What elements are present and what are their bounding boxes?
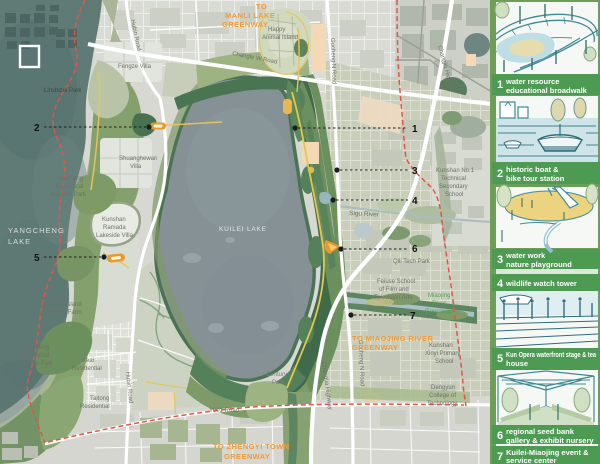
svg-text:Wetland Park: Wetland Park xyxy=(50,192,87,198)
svg-text:6: 6 xyxy=(412,244,418,255)
svg-text:educational broadwalk: educational broadwalk xyxy=(506,86,588,95)
svg-text:gallery & exhibit nursery: gallery & exhibit nursery xyxy=(506,436,594,445)
svg-text:wildlife watch tower: wildlife watch tower xyxy=(505,279,577,288)
svg-text:Ecological: Ecological xyxy=(22,353,49,359)
svg-text:Kunshan No.1: Kunshan No.1 xyxy=(436,168,475,174)
svg-text:Baicheng: Baicheng xyxy=(24,345,49,351)
svg-text:Y001 Road: Y001 Road xyxy=(209,408,239,414)
svg-text:water work: water work xyxy=(505,251,546,260)
svg-text:Taitong: Taitong xyxy=(90,396,109,402)
svg-text:service center: service center xyxy=(506,456,557,464)
svg-text:bike tour station: bike tour station xyxy=(506,174,565,183)
svg-text:Century: Century xyxy=(266,372,287,378)
svg-text:Keai: Keai xyxy=(82,358,94,364)
svg-text:Greenway: Greenway xyxy=(425,309,452,315)
svg-text:Technology: Technology xyxy=(427,401,457,407)
svg-text:Television Arts: Television Arts xyxy=(374,295,412,301)
svg-text:1: 1 xyxy=(412,124,418,135)
svg-text:Kun Opera waterfront stage & t: Kun Opera waterfront stage & tea xyxy=(506,350,597,359)
svg-text:LAKE: LAKE xyxy=(8,237,31,246)
svg-text:YANGCHENG: YANGCHENG xyxy=(8,226,65,235)
svg-text:Miaojing: Miaojing xyxy=(428,293,450,299)
svg-text:Feiuse School: Feiuse School xyxy=(377,279,415,285)
svg-text:7: 7 xyxy=(497,451,503,463)
svg-text:7: 7 xyxy=(410,311,416,322)
svg-text:6: 6 xyxy=(497,430,503,442)
svg-text:Linshizui Park: Linshizui Park xyxy=(44,88,82,94)
svg-text:Fengze Villa: Fengze Villa xyxy=(118,64,152,70)
svg-text:nature playground: nature playground xyxy=(506,260,572,269)
svg-text:Technical: Technical xyxy=(441,176,466,182)
svg-text:Qili Tech Park: Qili Tech Park xyxy=(393,259,431,265)
svg-text:Lakeside Villa: Lakeside Villa xyxy=(96,233,134,239)
svg-text:3: 3 xyxy=(412,166,418,177)
svg-text:TO: TO xyxy=(256,2,267,11)
svg-text:3: 3 xyxy=(497,254,503,266)
svg-text:Baicheng: Baicheng xyxy=(58,176,83,182)
svg-text:water resource: water resource xyxy=(505,77,559,86)
svg-text:School: School xyxy=(445,192,463,198)
svg-text:Kunshan: Kunshan xyxy=(102,217,126,223)
svg-text:4: 4 xyxy=(412,196,418,207)
svg-text:GREENWAY: GREENWAY xyxy=(224,452,270,461)
svg-text:of Film and: of Film and xyxy=(379,287,409,293)
svg-text:TO ZHENGYI TOWN: TO ZHENGYI TOWN xyxy=(213,442,290,451)
svg-text:Organic Farm: Organic Farm xyxy=(45,310,82,316)
svg-text:5: 5 xyxy=(34,253,40,264)
svg-text:Wetland Park: Wetland Park xyxy=(17,361,54,367)
svg-text:2: 2 xyxy=(497,168,503,180)
svg-text:Residential: Residential xyxy=(72,366,102,372)
svg-text:River: River xyxy=(432,301,446,307)
svg-text:Dengyun: Dengyun xyxy=(431,385,455,391)
svg-text:College of: College of xyxy=(429,393,456,399)
svg-text:4: 4 xyxy=(497,278,504,290)
svg-text:2: 2 xyxy=(34,123,40,134)
svg-text:Xinyi Primary: Xinyi Primary xyxy=(425,351,460,357)
svg-text:5: 5 xyxy=(497,353,503,365)
svg-text:Park: Park xyxy=(272,380,285,386)
svg-text:Ramada: Ramada xyxy=(103,225,126,231)
svg-text:Yueteng Island: Yueteng Island xyxy=(42,302,82,308)
svg-text:Secondary: Secondary xyxy=(439,184,468,190)
svg-text:Shuanghewan: Shuanghewan xyxy=(119,156,157,162)
svg-text:Happy: Happy xyxy=(268,27,285,33)
svg-text:Kunshan: Kunshan xyxy=(429,343,453,349)
svg-text:Animal Island: Animal Island xyxy=(262,35,298,41)
svg-text:house: house xyxy=(506,359,528,368)
svg-text:Residential: Residential xyxy=(80,404,110,410)
svg-text:Ecological: Ecological xyxy=(56,184,83,190)
svg-text:Villa: Villa xyxy=(130,164,142,170)
svg-text:TO MIAOJING RIVER: TO MIAOJING RIVER xyxy=(352,334,433,343)
svg-text:1: 1 xyxy=(497,79,503,91)
svg-text:GREENWAY: GREENWAY xyxy=(352,343,398,352)
svg-text:School: School xyxy=(435,359,453,365)
svg-text:MANLI LAKE: MANLI LAKE xyxy=(225,11,275,20)
svg-text:historic boat &: historic boat & xyxy=(506,165,559,174)
svg-text:GREENWAY: GREENWAY xyxy=(222,20,268,29)
svg-text:regional seed bank: regional seed bank xyxy=(506,427,575,436)
svg-text:KUILEI LAKE: KUILEI LAKE xyxy=(219,226,267,233)
